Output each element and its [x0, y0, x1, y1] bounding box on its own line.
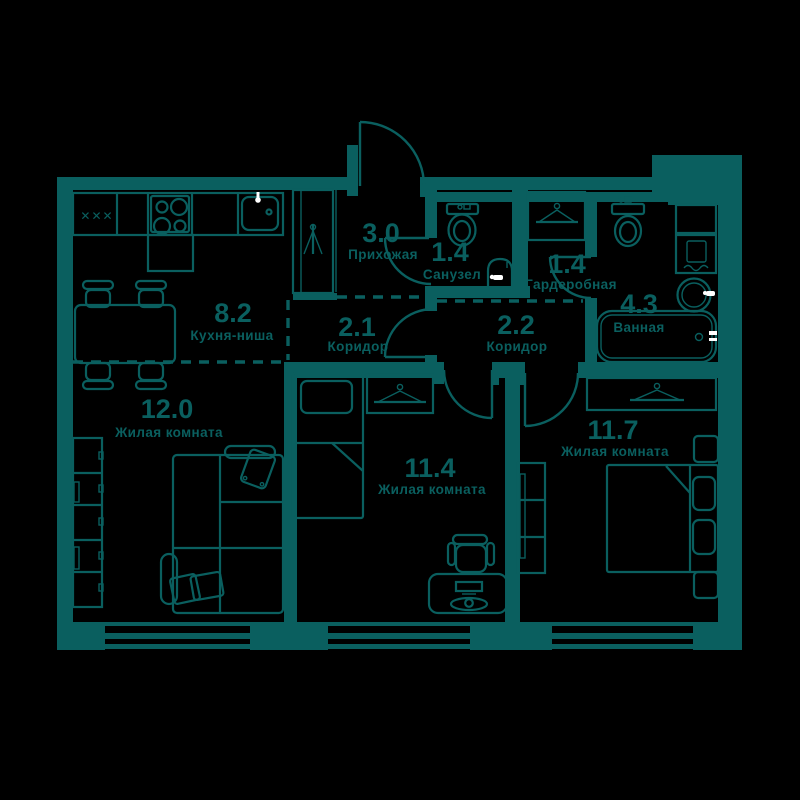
bathroom-name: Ванная	[613, 320, 664, 335]
living-12-area: 12.0	[141, 394, 194, 424]
washing-machine-icon	[676, 235, 716, 273]
hallway-area: 3.0	[362, 218, 400, 248]
window-living-11-7	[552, 622, 693, 650]
wardrobe-area: 1.4	[548, 249, 586, 279]
living-11-4-name: Жилая комната	[377, 482, 486, 497]
stove-icon	[151, 196, 189, 234]
living-11-4-door	[444, 370, 492, 418]
kitchen-name: Кухня-ниша	[190, 328, 273, 343]
entrance-door	[360, 122, 424, 186]
wc-name: Санузел	[423, 267, 481, 282]
windows	[105, 622, 693, 650]
wc-area: 1.4	[431, 237, 469, 267]
living-11-7-door	[525, 373, 578, 426]
living-12-wardrobe	[73, 438, 103, 607]
living-11-7-closet	[587, 378, 716, 410]
floor-plan-page: ✕✕✕	[0, 0, 800, 800]
living-11-4-bed	[293, 373, 363, 518]
corridor-2-area: 2.2	[497, 310, 535, 340]
corner-sofa	[161, 446, 283, 613]
living-12-name: Жилая комната	[114, 425, 223, 440]
living-11-7-wardrobe	[518, 463, 545, 573]
dining-chairs	[83, 281, 166, 389]
hallway-cabinet	[293, 190, 333, 293]
living-11-7-name: Жилая комната	[560, 444, 669, 459]
bath-cabinet	[676, 205, 716, 233]
double-bed	[607, 465, 718, 572]
corridor-door	[385, 309, 433, 357]
floor-plan: ✕✕✕	[0, 0, 800, 800]
living-11-7-area: 11.7	[587, 415, 638, 445]
bath-sink-icon	[678, 279, 716, 312]
cooktop-marks-icon: ✕✕✕	[80, 209, 113, 223]
kitchen-sink-icon	[242, 192, 278, 230]
desk-chair-icon	[448, 535, 494, 572]
living-11-4-closet	[367, 375, 433, 413]
wc-sink-icon	[488, 259, 512, 286]
bathroom-area: 4.3	[620, 289, 658, 319]
living-11-4-area: 11.4	[404, 453, 455, 483]
corridor-1-name: Коридор	[328, 339, 389, 354]
desk-icon	[429, 574, 507, 613]
bath-toilet-icon	[612, 197, 644, 246]
wardrobe-name: Гардеробная	[525, 277, 617, 292]
kitchen-area: 8.2	[214, 298, 252, 328]
window-living-12	[105, 622, 250, 650]
nightstands	[694, 436, 718, 598]
dining-table	[75, 305, 175, 363]
corridor-1-area: 2.1	[338, 312, 376, 342]
corridor-2-name: Коридор	[487, 339, 548, 354]
hallway-name: Прихожая	[348, 247, 418, 262]
window-living-11-4	[328, 622, 470, 650]
